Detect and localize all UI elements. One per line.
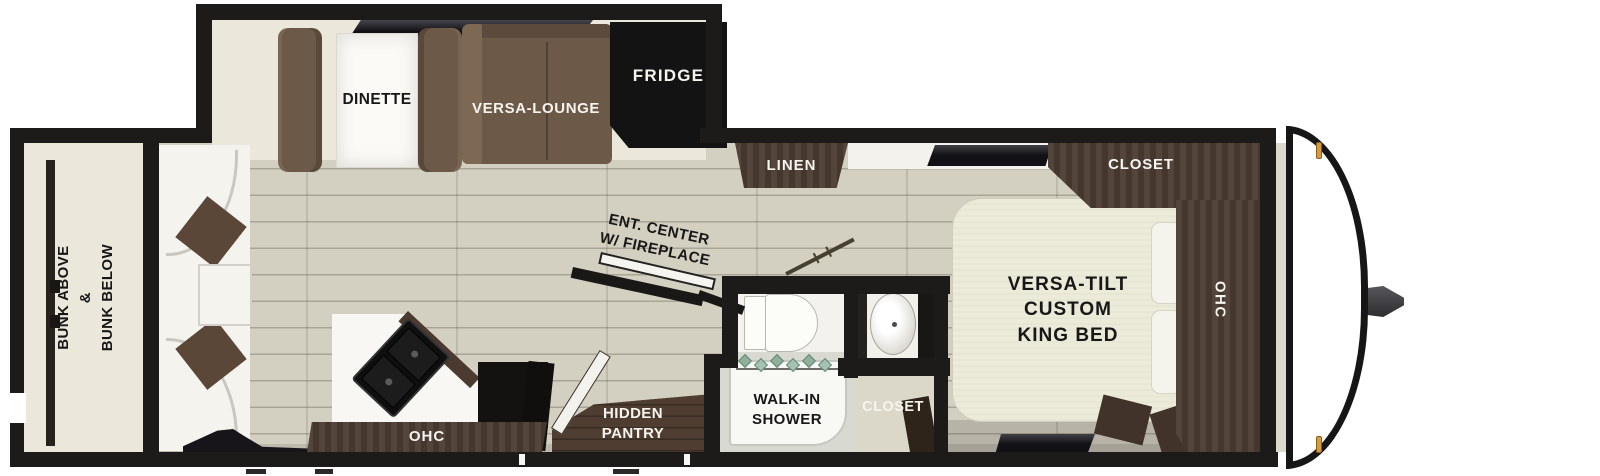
linen-label: LINEN: [767, 156, 817, 176]
bedroom-window-top: [922, 145, 1052, 166]
bunk-label-box: BUNK ABOVE & BUNK BELOW: [28, 143, 144, 452]
bed-label-line1: VERSA-TILT: [1008, 272, 1128, 297]
rear-wall-window-gap: [8, 393, 26, 423]
sink-drain: [892, 322, 897, 327]
bunk-label: BUNK ABOVE & BUNK BELOW: [53, 244, 118, 351]
slideout-wall-right: [706, 4, 722, 143]
sink-side-panel-right: [918, 290, 934, 360]
bath-closet-label: CLOSET: [850, 398, 936, 417]
dinette-label: DINETTE: [342, 90, 411, 110]
bedroom-ohc-label: OHC: [1210, 281, 1230, 319]
wall-top-rear: [10, 128, 212, 143]
wall-seam-1: [519, 454, 525, 465]
sink-basin: [870, 293, 916, 355]
wall-bottom: [10, 452, 1278, 467]
dinette-table: DINETTE: [336, 33, 418, 168]
floorplan: BUNK ABOVE & BUNK BELOW DINETTE VERSA-LO…: [0, 0, 1600, 476]
chassis-mark-1: [246, 469, 266, 474]
dinette-bench-left: [278, 28, 322, 172]
chassis-mark-2: [315, 469, 333, 474]
slideout-wall-left: [196, 4, 212, 143]
dinette-bench-right: [418, 28, 462, 172]
versa-lounge-label: VERSA-LOUNGE: [458, 99, 614, 119]
fridge-label: FRIDGE: [633, 65, 704, 87]
chassis-mark-3: [613, 469, 639, 474]
wall-seam-2: [684, 454, 690, 465]
slideout-wall-top: [196, 4, 722, 20]
kitchen-ohc-band: OHC: [307, 422, 547, 452]
kitchen-ohc-label: OHC: [409, 427, 445, 447]
king-bed: VERSA-TILT CUSTOM KING BED: [952, 198, 1184, 422]
marker-light-bottom: [1316, 436, 1322, 453]
bed-label-line3: KING BED: [1018, 323, 1119, 348]
front-passthrough-strip: [1276, 143, 1286, 452]
front-cap: [1286, 126, 1368, 469]
bath-wall-top: [722, 276, 950, 294]
versa-lounge-sofa: [462, 24, 612, 164]
bedroom-closet-label: CLOSET: [1096, 155, 1186, 175]
wall-top-mid: [700, 128, 1276, 143]
wall-bunk-divider: [143, 128, 159, 467]
toilet-tank: [744, 296, 766, 350]
sofa-armrest: [462, 24, 482, 164]
linen-cabinet: LINEN: [735, 143, 848, 188]
pantry-label: HIDDEN PANTRY: [578, 404, 688, 443]
shower-label: WALK-IN SHOWER: [726, 390, 848, 429]
rear-chairs-center-console: [198, 264, 252, 326]
shower-wall-left: [704, 354, 720, 467]
marker-light-top: [1316, 142, 1322, 159]
sink-side-panel-left: [858, 290, 867, 360]
bedroom-ohc-label-box: OHC: [1180, 262, 1260, 338]
bed-label-line2: CUSTOM: [1024, 297, 1112, 322]
bath-wall-mid-horizontal: [838, 358, 950, 376]
wall-front: [1260, 128, 1276, 467]
